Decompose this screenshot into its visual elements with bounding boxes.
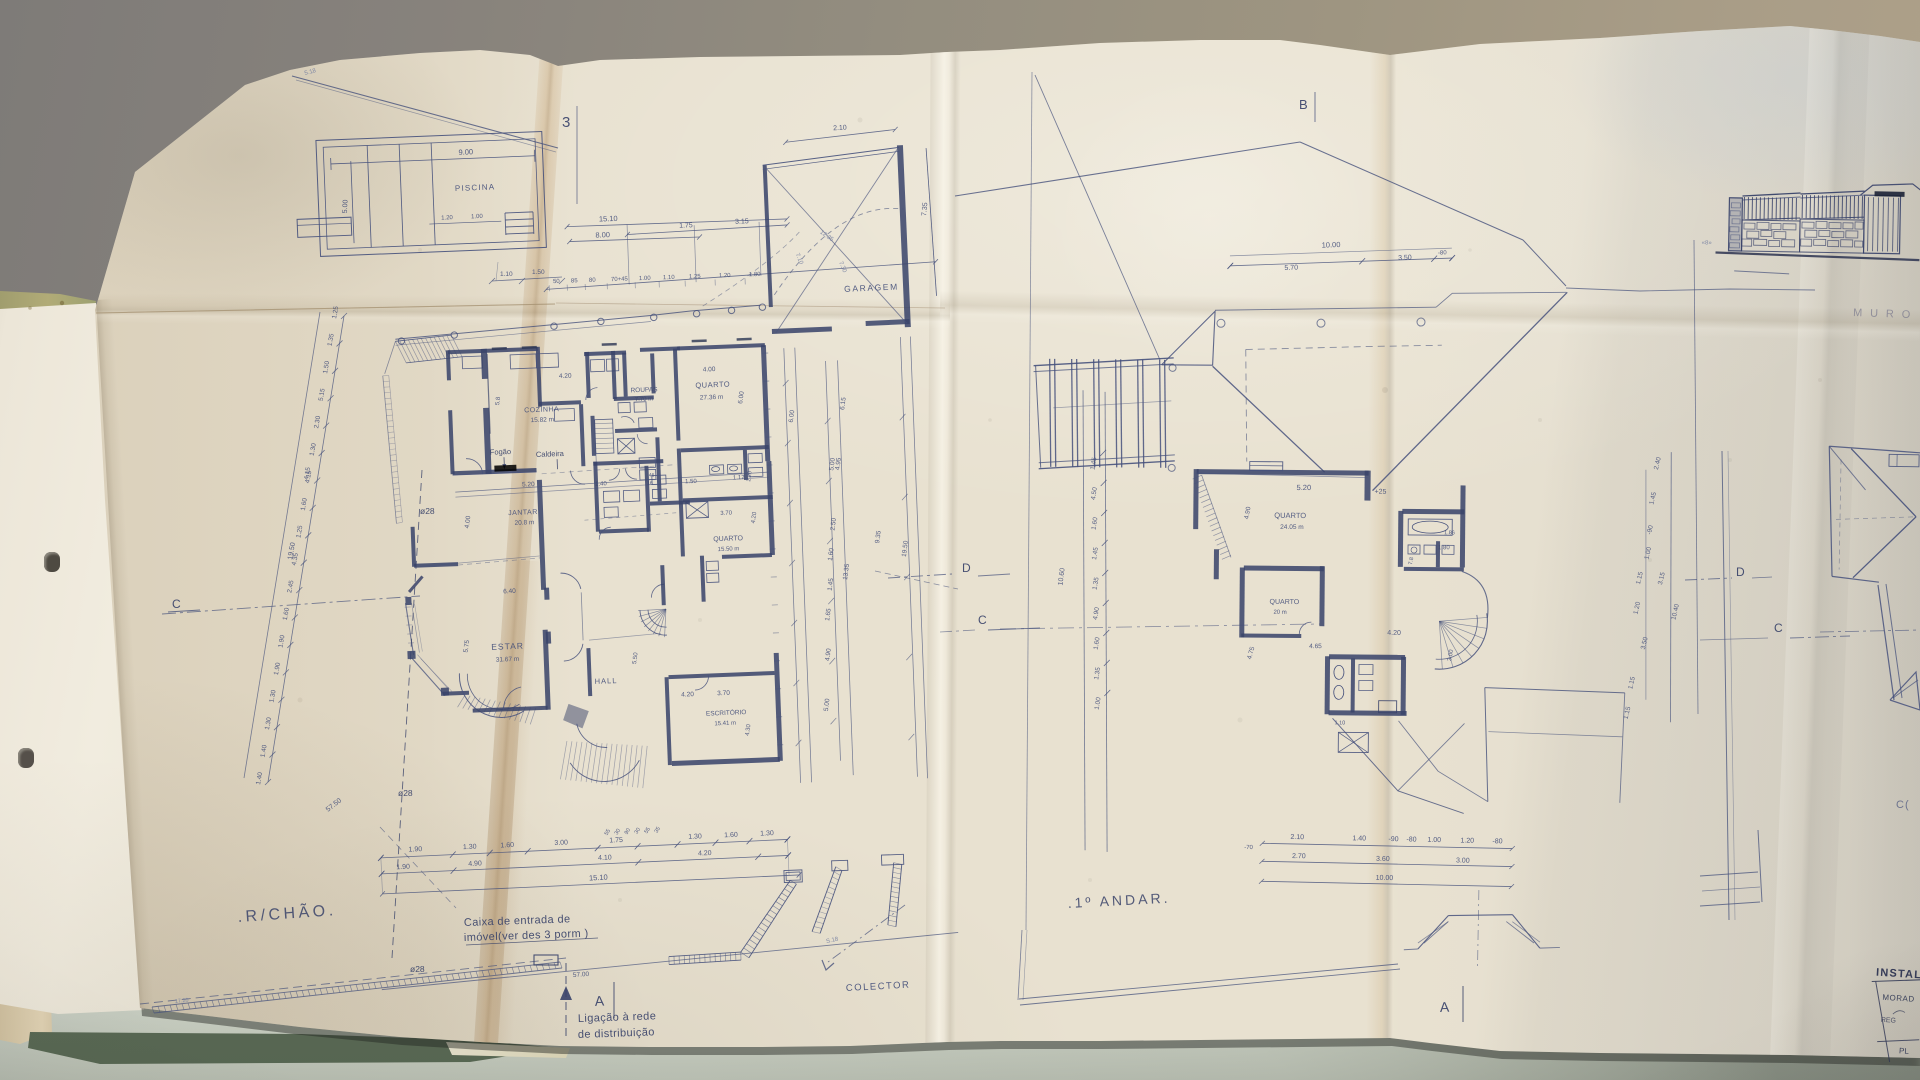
svg-text:1.15: 1.15 <box>1623 706 1633 720</box>
svg-text:1.35: 1.35 <box>327 333 336 347</box>
svg-text:1.15: 1.15 <box>1627 676 1637 690</box>
svg-text:-90: -90 <box>1388 836 1398 843</box>
svg-text:4.30: 4.30 <box>745 723 753 736</box>
svg-text:MORAD: MORAD <box>1882 993 1915 1004</box>
svg-text:10.00: 10.00 <box>1321 240 1340 250</box>
svg-text:QUARTO: QUARTO <box>695 379 730 389</box>
svg-text:1.35: 1.35 <box>1093 666 1102 680</box>
svg-text:15.41 m: 15.41 m <box>714 721 736 728</box>
svg-text:1.75: 1.75 <box>679 222 693 229</box>
svg-text:1.30: 1.30 <box>760 830 774 838</box>
svg-text:3.50: 3.50 <box>1398 254 1412 261</box>
svg-text:C: C <box>1774 621 1783 635</box>
svg-text:1.90: 1.90 <box>273 662 282 676</box>
svg-text:5.18: 5.18 <box>304 68 317 77</box>
svg-text:15.82 m: 15.82 m <box>530 416 554 424</box>
svg-text:30: 30 <box>634 827 642 835</box>
svg-text:4.20: 4.20 <box>751 511 759 524</box>
svg-text:PL: PL <box>1899 1046 1910 1056</box>
svg-text:3.70: 3.70 <box>720 510 733 516</box>
svg-text:9.00: 9.00 <box>458 147 473 157</box>
svg-text:1.40: 1.40 <box>1352 835 1366 842</box>
svg-text:S.18: S.18 <box>826 936 840 945</box>
svg-text:17.20: 17.20 <box>175 998 189 1005</box>
svg-text:5.15: 5.15 <box>318 388 327 402</box>
svg-text:1.86: 1.86 <box>1444 530 1455 536</box>
svg-text:1.12: 1.12 <box>733 475 746 481</box>
svg-text:6.40: 6.40 <box>503 588 516 595</box>
svg-text:-80: -80 <box>1492 838 1502 845</box>
svg-text:4.10: 4.10 <box>598 854 612 862</box>
svg-text:57.00: 57.00 <box>573 971 590 979</box>
svg-text:10.40: 10.40 <box>1670 603 1681 621</box>
svg-text:C: C <box>172 597 181 611</box>
svg-text:3: 3 <box>562 114 570 131</box>
svg-text:1.20: 1.20 <box>441 215 454 221</box>
svg-text:1.25: 1.25 <box>331 305 340 319</box>
svg-text:1.60: 1.60 <box>827 547 836 561</box>
svg-text:2.40: 2.40 <box>1653 456 1663 470</box>
svg-text:5.8: 5.8 <box>495 396 502 406</box>
svg-text:6.00: 6.00 <box>788 409 797 423</box>
svg-text:8.00: 8.00 <box>595 230 610 240</box>
svg-text:1.45: 1.45 <box>1091 546 1100 560</box>
svg-text:20.8 m: 20.8 m <box>514 519 534 527</box>
svg-text:Ligação à rede: Ligação à rede <box>578 1010 657 1025</box>
svg-text:10.00: 10.00 <box>1376 875 1394 882</box>
svg-text:1.10: 1.10 <box>1334 720 1345 726</box>
svg-text:C: C <box>978 613 987 627</box>
svg-text:4.20: 4.20 <box>681 691 694 698</box>
svg-text:C(: C( <box>1896 799 1910 811</box>
svg-text:1.60: 1.60 <box>282 607 291 621</box>
svg-text:3.00: 3.00 <box>554 839 568 847</box>
svg-text:-90: -90 <box>1646 524 1655 535</box>
svg-text:1.75: 1.75 <box>609 837 623 845</box>
svg-text:JANTAR: JANTAR <box>508 509 538 517</box>
svg-text:A: A <box>594 992 605 1009</box>
svg-text:3.15: 3.15 <box>1657 571 1667 585</box>
svg-text:1.90: 1.90 <box>408 846 422 854</box>
svg-text:1.00: 1.00 <box>471 214 484 220</box>
svg-text:4.75: 4.75 <box>1246 646 1256 660</box>
svg-text:M U R O: M U R O <box>1853 307 1913 321</box>
svg-text:1.35: 1.35 <box>1092 576 1101 590</box>
svg-text:1.50: 1.50 <box>532 269 545 276</box>
svg-text:B: B <box>1299 97 1308 112</box>
svg-text:-70: -70 <box>1244 845 1253 851</box>
svg-text:31.67 m: 31.67 m <box>496 656 520 664</box>
svg-text:D: D <box>962 561 971 575</box>
svg-text:80: 80 <box>589 278 597 284</box>
svg-text:4.90: 4.90 <box>1092 606 1101 620</box>
svg-text:2.10: 2.10 <box>1290 834 1304 841</box>
svg-text:.1º ANDAR.: .1º ANDAR. <box>1067 890 1171 911</box>
svg-text:1.90: 1.90 <box>396 864 410 872</box>
svg-text:4.90: 4.90 <box>1243 506 1252 520</box>
svg-text:35: 35 <box>654 826 662 834</box>
svg-text:15.10: 15.10 <box>599 214 618 224</box>
svg-text:«8»: «8» <box>1702 240 1713 246</box>
svg-text:15.10: 15.10 <box>589 873 608 883</box>
svg-text:7.10: 7.10 <box>794 252 804 266</box>
svg-text:HALL: HALL <box>594 676 617 686</box>
svg-text:1.40: 1.40 <box>260 744 269 758</box>
svg-text:3.60: 3.60 <box>1376 856 1390 863</box>
svg-text:1.45: 1.45 <box>1089 456 1098 470</box>
svg-text:4.20: 4.20 <box>559 373 572 380</box>
svg-text:1.25: 1.25 <box>295 525 304 539</box>
svg-text:5.00: 5.00 <box>342 199 350 213</box>
svg-text:Fogão: Fogão <box>490 447 512 457</box>
svg-text:ø28: ø28 <box>398 788 413 798</box>
svg-text:13.35: 13.35 <box>842 563 851 580</box>
svg-text:90: 90 <box>624 827 632 835</box>
svg-text:1.20: 1.20 <box>1633 601 1643 615</box>
svg-text:+25: +25 <box>1374 489 1386 496</box>
svg-text:1.60: 1.60 <box>1093 636 1102 650</box>
svg-text:7.8: 7.8 <box>1408 557 1415 566</box>
svg-text:7.35: 7.35 <box>921 202 929 216</box>
svg-text:COLECTOR: COLECTOR <box>846 980 911 994</box>
svg-text:20 m: 20 m <box>1273 610 1286 616</box>
svg-text:2.30: 2.30 <box>313 415 322 429</box>
svg-text:PISCINA: PISCINA <box>455 182 496 193</box>
svg-text:Caixa de entrada de: Caixa de entrada de <box>464 913 571 929</box>
svg-text:3.15: 3.15 <box>735 218 749 225</box>
svg-text:6.00: 6.00 <box>737 390 746 404</box>
svg-text:70+45: 70+45 <box>611 277 629 284</box>
svg-text:5.50: 5.50 <box>632 652 640 665</box>
svg-text:D: D <box>1736 565 1745 579</box>
svg-text:2.70: 2.70 <box>1292 853 1306 860</box>
svg-text:1.60: 1.60 <box>500 842 514 850</box>
svg-text:55: 55 <box>644 826 652 834</box>
svg-text:5.75: 5.75 <box>463 639 472 653</box>
svg-text:1.90: 1.90 <box>277 634 286 648</box>
svg-text:1.00: 1.00 <box>639 276 652 282</box>
svg-text:1.30: 1.30 <box>268 689 277 703</box>
svg-text:4.90: 4.90 <box>468 860 482 868</box>
svg-text:1.25: 1.25 <box>689 274 702 280</box>
svg-text:4.90: 4.90 <box>824 648 833 662</box>
svg-text:ESCRITÓRIO: ESCRITÓRIO <box>706 707 747 718</box>
svg-text:.R/CHÃO.: .R/CHÃO. <box>237 899 337 926</box>
svg-text:1.30: 1.30 <box>463 844 477 852</box>
svg-text:QUARTO: QUARTO <box>1270 599 1300 606</box>
svg-text:1.00: 1.00 <box>1427 837 1441 844</box>
svg-text:2.50: 2.50 <box>829 517 838 531</box>
svg-text:4.00: 4.00 <box>703 366 716 373</box>
svg-text:1.30: 1.30 <box>309 442 318 456</box>
svg-text:2.45: 2.45 <box>286 579 295 593</box>
svg-text:1.30: 1.30 <box>688 833 702 841</box>
svg-text:2.10: 2.10 <box>833 125 847 133</box>
svg-text:1.45: 1.45 <box>1648 491 1658 505</box>
svg-text:1.10: 1.10 <box>500 271 513 278</box>
svg-text:6.15: 6.15 <box>839 397 848 411</box>
svg-text:7.30: 7.30 <box>837 261 847 275</box>
svg-text:15.50 m: 15.50 m <box>718 546 740 553</box>
svg-text:1.60: 1.60 <box>1091 516 1100 530</box>
svg-text:4.50: 4.50 <box>1090 486 1099 500</box>
svg-text:1.15: 1.15 <box>1635 571 1645 585</box>
svg-text:27.36 m: 27.36 m <box>700 394 724 402</box>
svg-text:4.00: 4.00 <box>464 515 473 529</box>
svg-text:1.60: 1.60 <box>300 497 309 511</box>
svg-text:1.10: 1.10 <box>663 275 676 281</box>
svg-text:1.30: 1.30 <box>264 716 273 730</box>
svg-text:2.20: 2.20 <box>746 471 753 482</box>
svg-text:1.50: 1.50 <box>322 360 331 374</box>
svg-text:30: 30 <box>614 828 622 836</box>
svg-text:24.05 m: 24.05 m <box>1280 524 1304 531</box>
svg-text:5.20: 5.20 <box>1297 483 1312 492</box>
svg-text:4.65: 4.65 <box>1309 643 1322 650</box>
svg-text:1.00: 1.00 <box>1643 546 1653 560</box>
svg-text:10.60: 10.60 <box>1057 568 1066 586</box>
svg-text:50: 50 <box>553 279 561 285</box>
svg-text:QUARTO: QUARTO <box>1274 511 1306 520</box>
svg-text:1.00: 1.00 <box>1094 696 1103 710</box>
svg-text:ø28: ø28 <box>420 506 435 516</box>
svg-text:57.50: 57.50 <box>325 797 343 813</box>
svg-text:ESTAR: ESTAR <box>491 641 524 652</box>
svg-text:1.20: 1.20 <box>1460 837 1474 844</box>
svg-text:55: 55 <box>604 828 612 836</box>
svg-text:1.80: 1.80 <box>749 272 762 278</box>
svg-text:1.65: 1.65 <box>824 608 833 622</box>
svg-text:-80: -80 <box>1438 250 1448 256</box>
svg-text:A: A <box>1440 999 1451 1015</box>
svg-text:85: 85 <box>571 278 579 284</box>
svg-text:-80: -80 <box>1406 836 1416 843</box>
svg-text:ø28: ø28 <box>410 964 425 974</box>
svg-text:9.35: 9.35 <box>874 530 883 544</box>
svg-text:GARAGEM: GARAGEM <box>844 281 899 293</box>
svg-text:REG: REG <box>1881 1017 1897 1025</box>
svg-text:de distribuição: de distribuição <box>578 1026 655 1041</box>
svg-text:3.00: 3.00 <box>1456 857 1470 864</box>
svg-text:3.00: 3.00 <box>1447 648 1455 661</box>
svg-text:QUARTO: QUARTO <box>713 535 743 543</box>
svg-text:1.20: 1.20 <box>719 273 732 279</box>
svg-text:5.70: 5.70 <box>1284 264 1298 271</box>
svg-text:1.40: 1.40 <box>255 771 264 785</box>
svg-text:1.60: 1.60 <box>724 832 738 840</box>
svg-text:Caldeira: Caldeira <box>536 449 565 459</box>
svg-text:INSTAL: INSTAL <box>1876 967 1920 982</box>
svg-text:3.70: 3.70 <box>717 690 730 697</box>
svg-text:5.00: 5.00 <box>823 698 832 712</box>
svg-text:4.20: 4.20 <box>1387 630 1401 637</box>
svg-text:3.50: 3.50 <box>1640 636 1650 650</box>
svg-text:4.20: 4.20 <box>698 850 712 858</box>
